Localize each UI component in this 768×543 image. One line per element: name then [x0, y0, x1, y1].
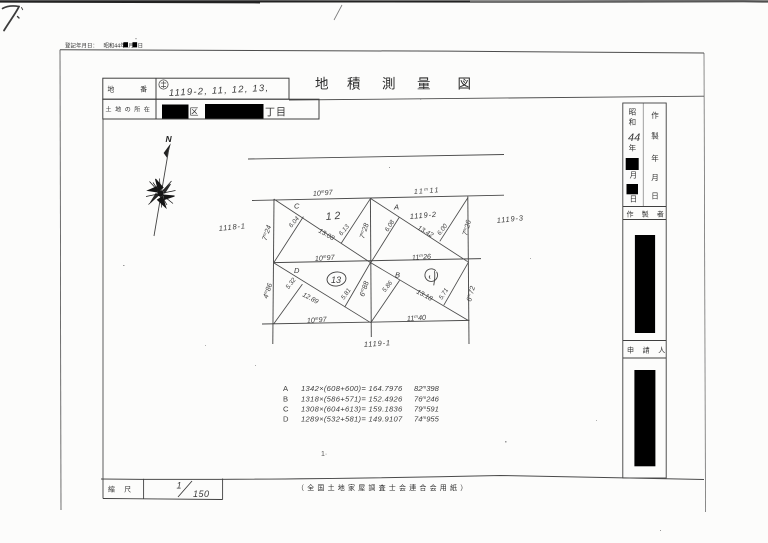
svg-text:製: 製 [651, 131, 659, 141]
svg-text:1·: 1· [321, 451, 327, 458]
svg-text:11m26: 11m26 [412, 252, 432, 262]
svg-text:5.81: 5.81 [340, 287, 353, 301]
svg-text:82m398: 82m398 [414, 384, 440, 393]
svg-text:C: C [294, 202, 300, 211]
svg-text:月: 月 [651, 173, 659, 182]
svg-text:150: 150 [193, 489, 210, 499]
svg-text:昭: 昭 [629, 108, 637, 117]
svg-text:6m72: 6m72 [464, 285, 477, 303]
svg-text:6.04: 6.04 [288, 215, 302, 229]
svg-text:和: 和 [629, 118, 637, 127]
svg-text:地番: 地番 [108, 85, 148, 94]
svg-text:11m11: 11m11 [414, 185, 441, 196]
svg-text:地: 地 [315, 77, 329, 92]
svg-text:年: 年 [651, 153, 659, 163]
svg-text:昭和44年: 昭和44年 [104, 41, 127, 49]
svg-text:7m26: 7m26 [460, 219, 473, 237]
svg-text:12.89: 12.89 [301, 292, 319, 306]
svg-text:作製者: 作製者 [627, 210, 673, 219]
svg-text:1: 1 [177, 481, 182, 491]
svg-text:区: 区 [190, 107, 199, 117]
svg-text:1318×(586+571)= 152.4926: 1318×(586+571)= 152.4926 [301, 395, 403, 404]
svg-text:6.13: 6.13 [338, 223, 352, 237]
svg-text:7m28: 7m28 [357, 222, 370, 240]
svg-text:積: 積 [347, 77, 361, 92]
svg-text:日: 日 [651, 192, 659, 201]
svg-text:12: 12 [325, 209, 344, 222]
svg-text:土地の所在: 土地の所在 [106, 106, 154, 114]
svg-text:1119-3: 1119-3 [496, 213, 524, 225]
svg-text:13: 13 [331, 275, 341, 285]
svg-text:1119-2: 1119-2 [409, 210, 437, 221]
svg-text:月: 月 [630, 171, 638, 180]
svg-text:7m24: 7m24 [260, 224, 273, 242]
svg-text:13.08: 13.08 [317, 228, 335, 243]
svg-text:A: A [393, 203, 399, 212]
svg-text:5.71: 5.71 [438, 287, 450, 301]
svg-text:（全国土地家屋調査士会連合会用紙）: （全国土地家屋調査士会連合会用紙） [297, 483, 470, 492]
svg-text:76m246: 76m246 [414, 395, 440, 404]
svg-text:日: 日 [138, 42, 143, 49]
svg-text:1118-1: 1118-1 [218, 221, 246, 233]
svg-text:1289×(532+581)= 149.9107: 1289×(532+581)= 149.9107 [301, 415, 403, 424]
svg-text:6.08: 6.08 [384, 219, 397, 234]
svg-text:丁目: 丁目 [265, 108, 287, 119]
svg-text:5.32: 5.32 [285, 276, 298, 290]
svg-text:13.18: 13.18 [415, 289, 433, 303]
svg-text:量: 量 [417, 77, 431, 92]
svg-text:4m86: 4m86 [261, 282, 274, 300]
svg-text:44: 44 [628, 132, 640, 144]
svg-text:79m591: 79m591 [414, 405, 439, 414]
svg-text:作: 作 [651, 110, 659, 120]
svg-text:D: D [294, 266, 300, 275]
svg-text:図: 図 [458, 77, 472, 92]
svg-text:A: A [283, 384, 289, 393]
svg-text:13.42: 13.42 [416, 225, 434, 240]
svg-text:1119-1: 1119-1 [364, 338, 392, 349]
svg-text:日: 日 [630, 195, 638, 204]
svg-text:年: 年 [629, 143, 637, 153]
svg-text:申請人: 申請人 [627, 346, 674, 355]
svg-text:74m955: 74m955 [414, 415, 440, 424]
svg-text:1342×(608+600)= 164.7976: 1342×(608+600)= 164.7976 [301, 384, 403, 393]
svg-text:B: B [395, 271, 400, 280]
svg-text:測: 測 [382, 77, 396, 92]
svg-text:1308×(604+613)= 159.1836: 1308×(604+613)= 159.1836 [301, 405, 403, 414]
svg-text:1119-2, 11, 12, 13,: 1119-2, 11, 12, 13, [169, 83, 270, 99]
svg-text:縮尺: 縮尺 [108, 485, 131, 494]
svg-text:C: C [283, 405, 289, 414]
svg-text:登記年月日：: 登記年月日： [65, 41, 98, 49]
svg-text:B: B [283, 395, 288, 404]
svg-text:10m97: 10m97 [313, 188, 334, 198]
svg-text:N: N [166, 134, 173, 144]
svg-text:D: D [283, 415, 289, 424]
